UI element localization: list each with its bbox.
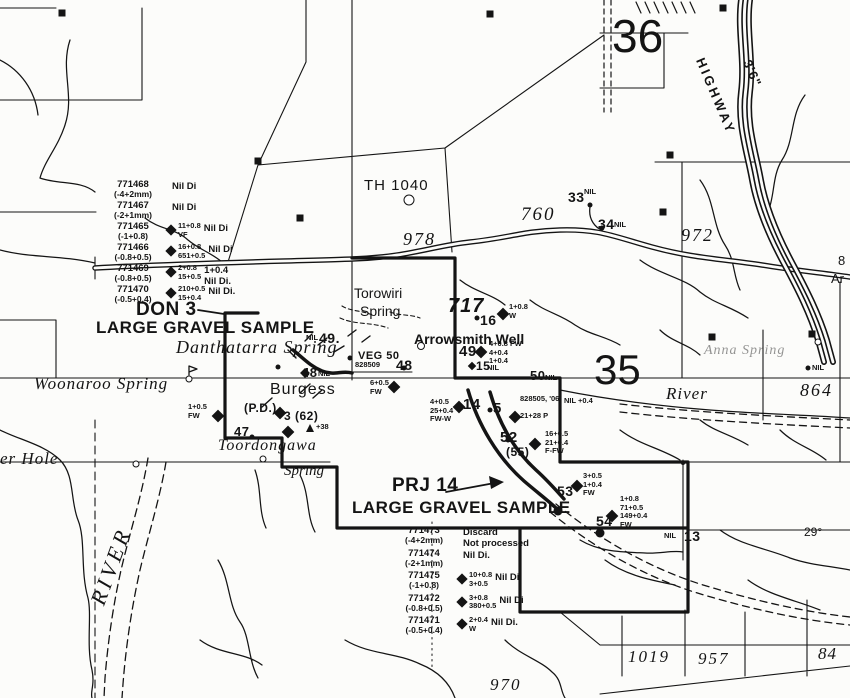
sample-note: Discard Not processed <box>463 528 529 550</box>
sample-note: Nil Di <box>172 203 196 214</box>
dashed-track-north <box>604 0 611 112</box>
sample-row: 771469(-0.8+0.5) 2+0.8 15+0.5 1+0.4 Nil … <box>102 264 235 285</box>
sample-diamond-icon <box>165 266 176 277</box>
sample-id-block: 771471(-0.5+0.4) <box>393 616 455 635</box>
sample-row: 771465(-1+0.8) 11+0.8 VF Nil Di <box>102 222 235 243</box>
sample-id-block: 771474(-2+1mm) <box>393 549 455 568</box>
sample-id-block: 771468(-4+2mm) <box>102 180 164 199</box>
sample-diamond-icon <box>456 573 467 584</box>
sample-list-don3: 771468(-4+2mm) Nil Di 771467(-2+1mm) Nil… <box>102 180 235 306</box>
sample-values: 2+0.8 15+0.5 <box>178 264 201 281</box>
sample-id-block: 771473(-4+2mm) <box>393 526 455 545</box>
sample-diamond-icon <box>456 596 467 607</box>
sample-values: 16+0.8 651+0.5 <box>178 243 205 260</box>
sample-list-prj14: 771473(-4+2mm) Discard Not processed 771… <box>393 526 529 639</box>
sample-id-block: 771470(-0.5+0.4) <box>102 285 164 304</box>
sample-row: 771466(-0.8+0.5) 16+0.8 651+0.5 Nil Di <box>102 243 235 264</box>
woonaroo-flag <box>189 366 197 375</box>
sample-row: 771475(-1+0.8) 10+0.8 3+0.5 Nil Di. <box>393 571 529 594</box>
sample-fraction: (-0.8+0.5) <box>102 253 164 262</box>
sample-diamond-icon <box>165 224 176 235</box>
map-canvas: 3635TH 104097876097271786410199578497029… <box>0 0 850 698</box>
sample-fraction: (-4+2mm) <box>102 190 164 199</box>
sample-row: 771468(-4+2mm) Nil Di <box>102 180 235 201</box>
sample-fraction: (-0.8+0.5) <box>102 274 164 283</box>
sample-diamond-icon <box>165 245 176 256</box>
sample-values: 3+0.8 380+0.5 <box>469 594 496 611</box>
sample-fraction: (-2+1mm) <box>102 211 164 220</box>
sample-row: 771467(-2+1mm) Nil Di <box>102 201 235 222</box>
sample-row: 771474(-2+1mm) Nil Di. <box>393 549 529 572</box>
sample-row: 771473(-4+2mm) Discard Not processed <box>393 526 529 549</box>
sample-note: Nil Di. <box>463 551 490 562</box>
sample-values: 11+0.8 VF <box>178 222 201 239</box>
sample-id-block: 771465(-1+0.8) <box>102 222 164 241</box>
dashed-track-southeast <box>550 504 850 625</box>
sample-note: Nil Di. <box>491 618 518 629</box>
sample-diamond-icon <box>165 287 176 298</box>
sample-fraction: (-4+2mm) <box>393 536 455 545</box>
gravel-channel-streams <box>293 350 564 509</box>
sample-values: 10+0.8 3+0.5 <box>469 571 492 588</box>
sample-id-block: 771472(-0.8+0.5) <box>393 594 455 613</box>
sample-row: 771472(-0.8+0.5) 3+0.8 380+0.5 Nil Di <box>393 594 529 617</box>
highway-fill <box>749 0 833 362</box>
sample-note: Nil Di <box>172 182 196 193</box>
sample-row: 771470(-0.5+0.4) 210+0.5 15+0.4 Nil Di. <box>102 285 235 306</box>
sample-note: 1+0.4 Nil Di. <box>204 266 231 288</box>
sample-id-block: 771466(-0.8+0.5) <box>102 243 164 262</box>
sample-id-block: 771467(-2+1mm) <box>102 201 164 220</box>
sample-fraction: (-1+0.8) <box>102 232 164 241</box>
sample-values: 2+0.4 W <box>469 616 488 633</box>
prj14-arrowhead <box>489 476 504 489</box>
boundary-tick-marks <box>636 2 695 13</box>
sample-fraction: (-2+1mm) <box>393 559 455 568</box>
sample-note: Nil Di. <box>208 287 235 298</box>
sample-diamond-icon <box>456 618 467 629</box>
sample-fraction: (-0.8+0.5) <box>393 604 455 613</box>
sample-fraction: (-0.5+0.4) <box>393 626 455 635</box>
sample-fraction: (-1+0.8) <box>393 581 455 590</box>
sample-note: Nil Di. <box>495 573 522 584</box>
sample-id-block: 771469(-0.8+0.5) <box>102 264 164 283</box>
sample-fraction: (-0.5+0.4) <box>102 295 164 304</box>
sample-row: 771471(-0.5+0.4) 2+0.4 W Nil Di. <box>393 616 529 639</box>
sample-id-block: 771475(-1+0.8) <box>393 571 455 590</box>
sample-note: Nil Di <box>204 224 228 235</box>
sample-note: Nil Di <box>499 596 523 607</box>
sample-note: Nil Di <box>208 245 232 256</box>
sample-values: 210+0.5 15+0.4 <box>178 285 205 302</box>
river-channel-dashed <box>104 458 166 698</box>
